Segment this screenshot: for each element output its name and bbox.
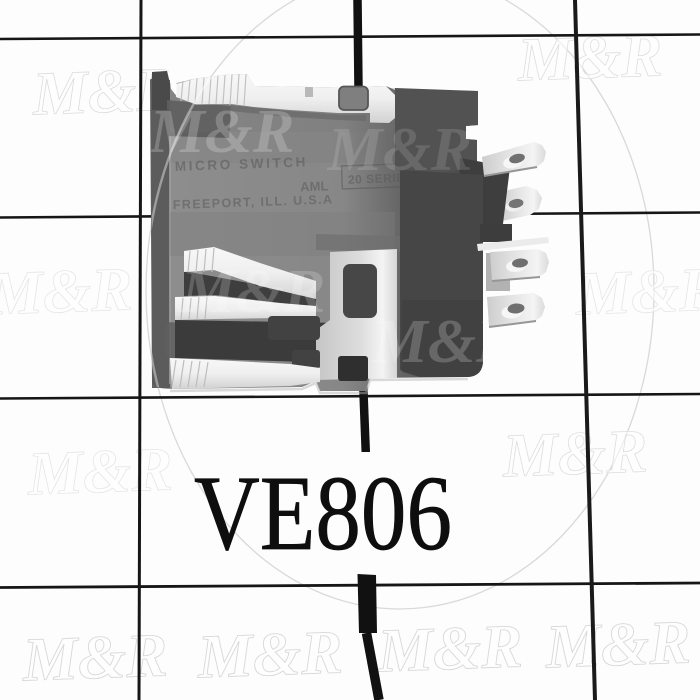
svg-text:M&R: M&R: [0, 255, 134, 328]
svg-text:M&R: M&R: [516, 21, 664, 94]
svg-text:M&R: M&R: [26, 435, 174, 508]
svg-text:M&R: M&R: [327, 116, 473, 184]
svg-text:M&R: M&R: [501, 417, 649, 490]
svg-text:M&R: M&R: [544, 608, 692, 681]
svg-text:M&R: M&R: [196, 618, 344, 691]
svg-text:M&R: M&R: [574, 255, 700, 328]
svg-text:M&R: M&R: [21, 621, 169, 694]
svg-text:AML: AML: [300, 178, 329, 194]
svg-text:VE806: VE806: [194, 455, 452, 573]
svg-text:M&R: M&R: [376, 612, 524, 685]
svg-text:M&R: M&R: [180, 258, 326, 326]
